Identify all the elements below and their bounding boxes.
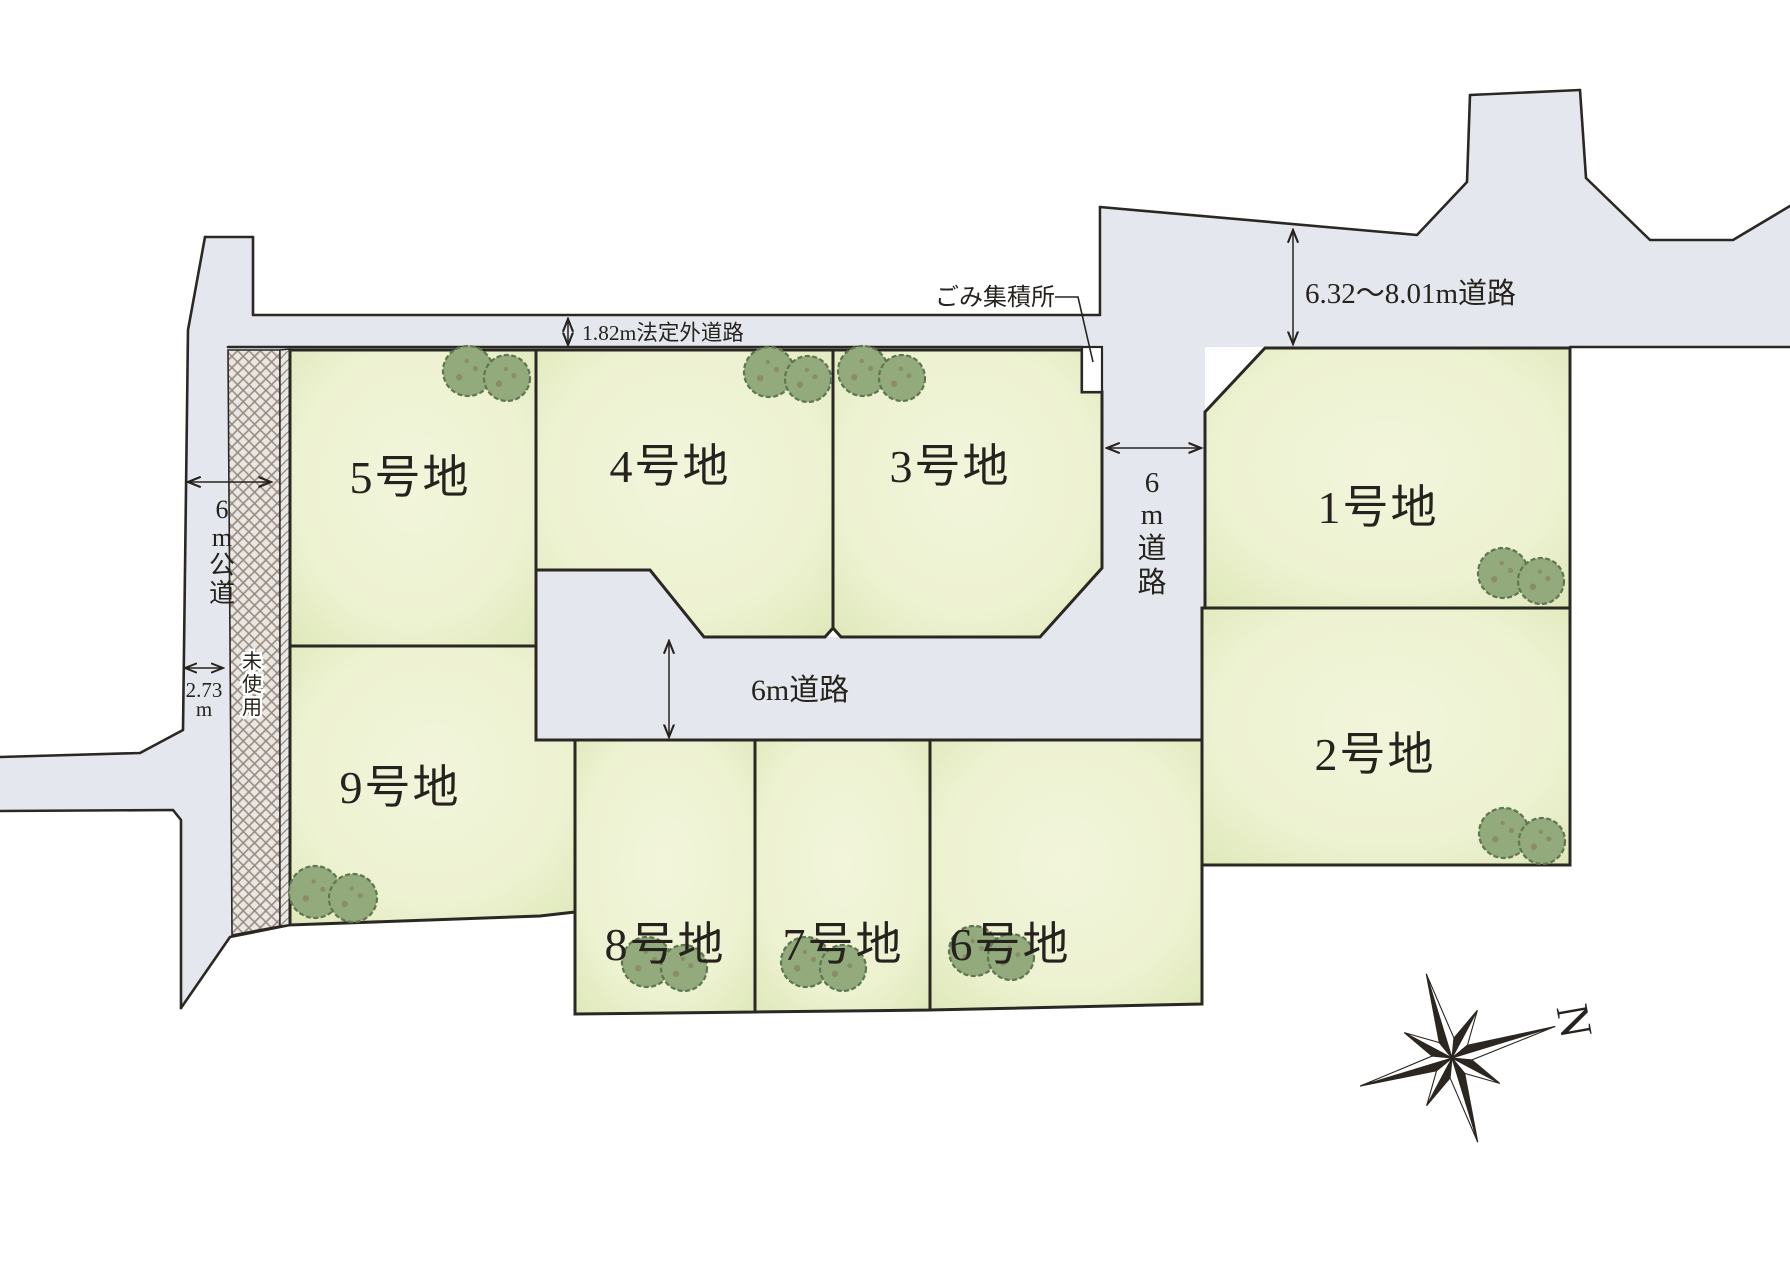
tree-icon (484, 355, 530, 401)
tree-speck (757, 375, 763, 381)
tree-speck (899, 367, 903, 371)
lot-8-label: 8号地 (605, 919, 726, 970)
tree-speck (1531, 844, 1537, 850)
tree-speck (465, 359, 469, 363)
tree-speck (860, 359, 864, 363)
tree-speck (303, 895, 309, 901)
garbage-label: ごみ集積所 (935, 284, 1055, 311)
left-road-char-4: 道 (209, 579, 235, 608)
left-road-char-3: 公 (209, 551, 235, 580)
left-road-char-1: 6 (216, 495, 229, 524)
lot-3-label: 3号地 (890, 441, 1011, 492)
tree-speck (511, 373, 516, 378)
tree-speck (906, 373, 911, 378)
tree-speck (456, 374, 462, 380)
tree-speck (1492, 836, 1498, 842)
site-plan-svg: 1.82m法定外道路 ごみ集積所 6.32〜8.01m道路 6 m 道 路 6m… (0, 0, 1790, 1276)
lot-1-label: 1号地 (1318, 482, 1439, 533)
tree-icon (1519, 818, 1565, 864)
tree-speck (1530, 584, 1536, 590)
lot-7-label: 7号地 (783, 919, 904, 970)
tree-speck (312, 879, 316, 883)
lot-2-label: 2号地 (1315, 729, 1436, 780)
tree-speck (504, 367, 508, 371)
ne-road-label: 6.32〜8.01m道路 (1305, 277, 1516, 310)
lot-6-label: 6号地 (950, 919, 1071, 970)
tree-speck (320, 887, 325, 892)
tree-icon (879, 355, 925, 401)
tree-speck (1491, 576, 1497, 582)
mid-road-label: 6m道路 (751, 674, 849, 707)
unused-label: 未 使 用 (242, 650, 262, 719)
compass-rose (1360, 974, 1555, 1142)
tree-speck (774, 367, 779, 372)
tree-speck (832, 971, 838, 977)
unused-strip-hatch (228, 350, 280, 935)
tree-speck (1538, 570, 1542, 574)
tree-speck (1546, 836, 1551, 841)
tree-speck (891, 381, 897, 387)
tree-speck (1500, 561, 1504, 565)
tree-speck (1501, 821, 1505, 825)
tree-speck (673, 971, 679, 977)
unused-char-3: 用 (242, 697, 262, 719)
garbage-spot (1082, 347, 1102, 392)
tree-speck (1508, 568, 1513, 573)
right-road-char-2: m (1141, 499, 1164, 531)
dim-273-unit: m (196, 697, 212, 721)
tree-speck (341, 901, 347, 907)
tree-speck (868, 366, 873, 371)
tree-speck (496, 381, 502, 387)
tree-speck (851, 374, 857, 380)
unused-strip (228, 349, 290, 935)
tree-speck (1539, 830, 1543, 834)
tree-speck (805, 368, 809, 372)
tree-icon (1518, 558, 1564, 604)
tree-speck (1545, 576, 1550, 581)
tree-speck (1509, 828, 1514, 833)
tree-speck (797, 382, 803, 388)
tree-speck (766, 360, 770, 364)
unused-char-2: 使 (242, 673, 262, 696)
lot-9-label: 9号地 (340, 762, 461, 813)
tree-speck (812, 374, 817, 379)
right-road-char-3: 道 (1137, 532, 1166, 565)
lot-5-label: 5号地 (350, 452, 471, 503)
tree-icon (329, 874, 377, 922)
unused-char-1: 未 (242, 650, 262, 673)
right-road-char-4: 路 (1137, 566, 1166, 599)
right-road-char-1: 6 (1145, 467, 1160, 499)
tree-speck (473, 366, 478, 371)
tree-icon (785, 356, 831, 402)
site-plan-map: 1.82m法定外道路 ごみ集積所 6.32〜8.01m道路 6 m 道 路 6m… (0, 0, 1790, 1276)
tree-speck (358, 893, 363, 898)
compass-north-label: N (1546, 1000, 1602, 1042)
tree-speck (350, 886, 354, 890)
road-edge-left-west (0, 237, 205, 757)
lot-4-label: 4号地 (610, 441, 731, 492)
left-road-char-2: m (212, 523, 232, 552)
narrow-road-label: 1.82m法定外道路 (582, 321, 744, 345)
road-edge-branch-south (0, 810, 181, 1008)
